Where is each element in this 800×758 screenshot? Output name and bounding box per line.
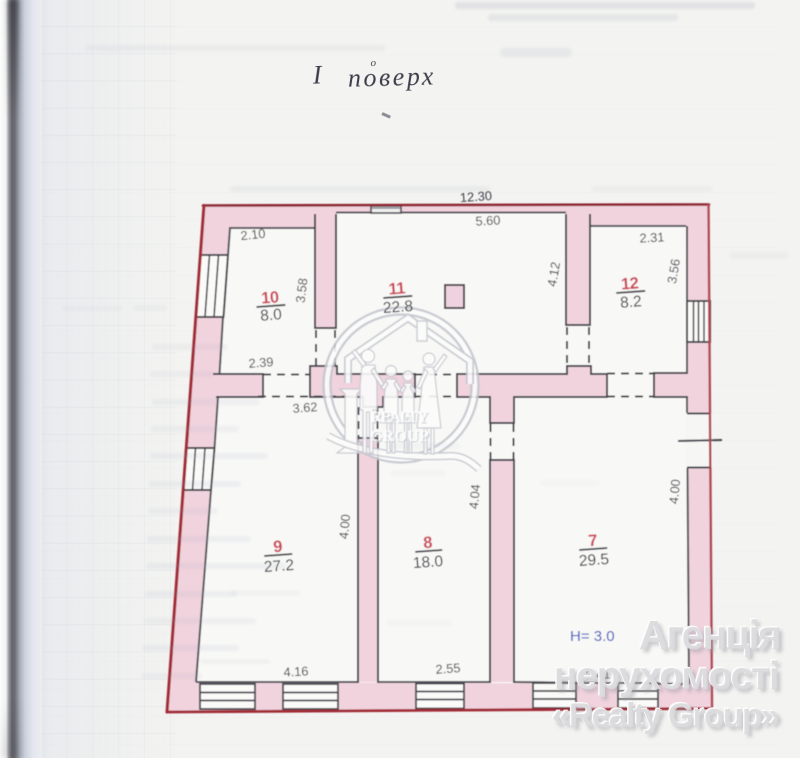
- svg-text:4.16: 4.16: [283, 663, 309, 679]
- svg-text:Агенція: Агенція: [639, 612, 782, 658]
- svg-text:29.5: 29.5: [578, 551, 609, 570]
- svg-text:9: 9: [273, 538, 283, 557]
- svg-text:8.0: 8.0: [260, 306, 283, 324]
- svg-text:8.2: 8.2: [620, 293, 643, 311]
- svg-text:3.58: 3.58: [293, 277, 311, 304]
- svg-text:3.62: 3.62: [292, 399, 318, 416]
- svg-text:поверх: поверх: [348, 61, 437, 92]
- svg-text:7: 7: [588, 532, 598, 551]
- svg-text:18.0: 18.0: [412, 553, 444, 572]
- svg-text:4.00: 4.00: [336, 514, 353, 540]
- svg-text:8: 8: [423, 534, 433, 553]
- svg-text:H= 3.0: H= 3.0: [570, 628, 615, 645]
- svg-text:REALTY: REALTY: [370, 409, 430, 426]
- svg-text:«Realty Group»: «Realty Group»: [552, 697, 780, 735]
- svg-text:2.10: 2.10: [240, 226, 266, 244]
- svg-text:12.30: 12.30: [459, 188, 492, 205]
- svg-text:22.8: 22.8: [382, 298, 413, 317]
- svg-text:о: о: [370, 57, 376, 69]
- svg-text:4.00: 4.00: [666, 479, 683, 505]
- svg-text:5.60: 5.60: [475, 212, 501, 228]
- svg-text:І: І: [311, 60, 323, 89]
- svg-text:4.04: 4.04: [466, 484, 483, 510]
- svg-text:нерухомості: нерухомості: [554, 655, 780, 698]
- svg-text:2.31: 2.31: [639, 229, 665, 245]
- svg-text:2.39: 2.39: [248, 354, 274, 371]
- svg-text:GROUP: GROUP: [370, 428, 431, 445]
- svg-text:2.55: 2.55: [435, 660, 461, 677]
